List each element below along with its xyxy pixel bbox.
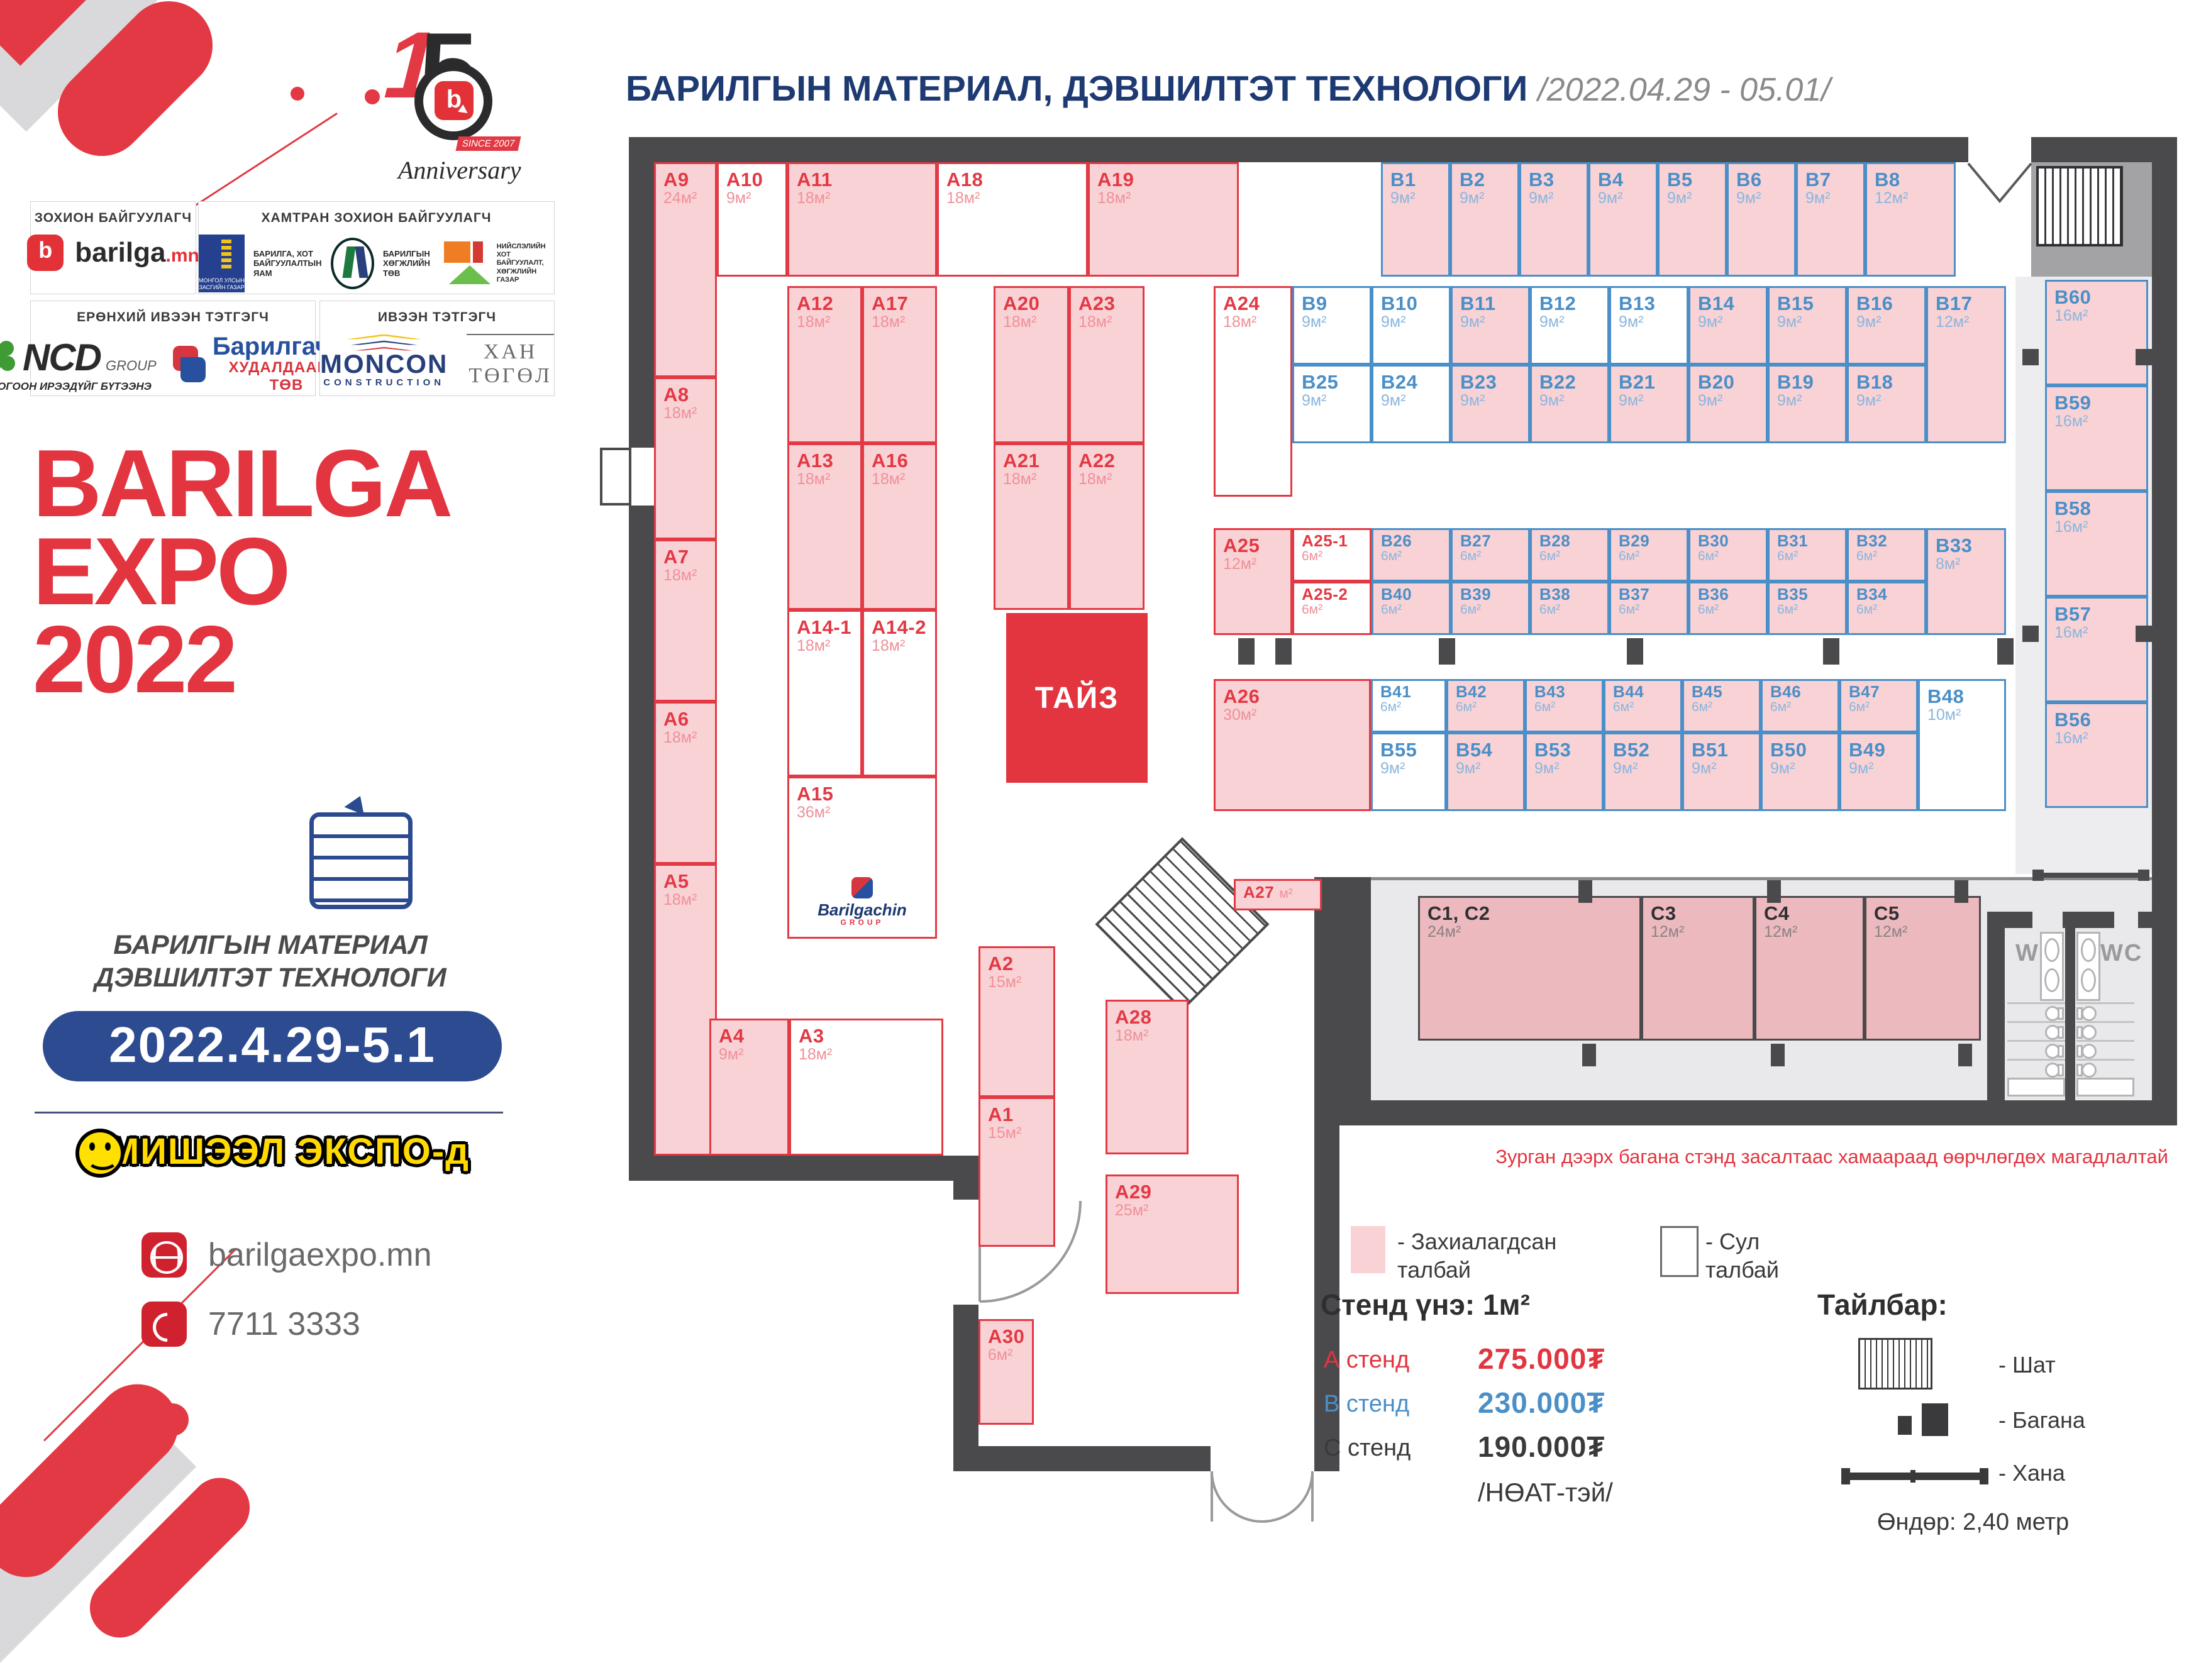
booth-B34: B346м² [1847,582,1926,635]
booth-B43: B436м² [1525,679,1604,732]
booth-B49: B499м² [1839,732,1918,811]
booth-B32: B326м² [1847,528,1926,582]
booth-B23: B239м² [1451,365,1530,443]
floor-plan: ТАЙЗ WC WC Зурган дээрх багана стэнд зас… [0,0,2206,1561]
structural-column [2032,870,2044,881]
structural-column [1238,638,1255,665]
key-wall-label: - Хана [1998,1460,2065,1486]
booth-A9: A924м² [654,162,717,377]
booth-A18: A1818м² [937,162,1088,277]
barilgachin-group-logo: BarilgachinGROUP [789,877,935,927]
booth-B44: B446м² [1604,679,1682,732]
structural-column [1954,880,1968,903]
booth-A27: A27м² [1234,879,1322,910]
booth-B51: B519м² [1682,732,1761,811]
booth-B52: B529м² [1604,732,1682,811]
structural-column [1771,1044,1785,1066]
booth-B2: B29м² [1450,162,1519,277]
structural-column [2138,870,2149,881]
structural-column [2136,626,2152,642]
column-icon-large [1922,1403,1948,1436]
booth-B28: B286м² [1530,528,1609,582]
booth-B1: B19м² [1381,162,1450,277]
key-height-note: Өндөр: 2,40 метр [1877,1509,2069,1536]
booth-B46: B466м² [1761,679,1839,732]
booth-A14-1: A14-118м² [787,610,862,776]
booth-B54: B549м² [1446,732,1525,811]
booth-B11: B119м² [1451,286,1530,365]
booth-B35: B356м² [1768,582,1847,635]
booth-B27: B276м² [1451,528,1530,582]
booth-A21: A2118м² [994,443,1069,610]
booth-A19: A1918м² [1088,162,1239,277]
structural-column [1582,1044,1596,1066]
booth-A6: A618м² [654,702,717,864]
column-icon-small [1898,1416,1912,1435]
booth-A17: A1718м² [862,286,937,443]
booth-B20: B209м² [1688,365,1768,443]
booth-B55: B559м² [1371,732,1446,811]
pricing-value-b: 230.000₮ [1478,1386,1605,1420]
booth-B45: B456м² [1682,679,1761,732]
booth-A15: A1536м²BarilgachinGROUP [787,776,937,939]
booth-A13: A1318м² [787,443,862,610]
booth-B12: B129м² [1530,286,1609,365]
booth-C4: C412м² [1754,896,1865,1041]
booth-B47: B476м² [1839,679,1918,732]
booth-C1-C2: C1, C224м² [1418,896,1641,1041]
booth-A8: A818м² [654,377,717,539]
booth-A16: A1618м² [862,443,937,610]
structural-column [1997,638,2014,665]
booth-A12: A1218м² [787,286,862,443]
pricing-vat-note: /НӨАТ-тэй/ [1478,1478,1613,1508]
booth-A11: A1118м² [787,162,937,277]
pricing-value-a: 275.000₮ [1478,1342,1605,1376]
structural-column [2136,349,2152,365]
booth-B56: B5616м² [2045,702,2148,808]
booth-A4: A49м² [709,1019,789,1156]
booth-A23: A2318м² [1069,286,1145,443]
legend-booked-swatch [1351,1226,1385,1273]
legend-free-swatch [1660,1226,1699,1277]
booth-B48: B4810м² [1918,679,2006,811]
booth-B21: B219м² [1609,365,1688,443]
booth-A25: A2512м² [1214,528,1292,635]
booth-C3: C312м² [1641,896,1754,1041]
booth-B58: B5816м² [2045,491,2148,597]
booth-A26: A2630м² [1214,679,1371,811]
structural-column [1627,638,1643,665]
booth-B33: B338м² [1926,528,2006,635]
booth-A29: A2925м² [1106,1174,1239,1294]
booth-B4: B49м² [1588,162,1658,277]
booth-A7: A718м² [654,539,717,702]
pricing-label-a: А стенд [1324,1347,1409,1374]
booth-B24: B249м² [1372,365,1451,443]
booth-A22: A2218м² [1069,443,1145,610]
booth-A2: A215м² [978,946,1055,1097]
booth-A1: A115м² [978,1097,1055,1247]
booth-B57: B5716м² [2045,597,2148,702]
structural-column [1439,638,1455,665]
booth-A10: A109м² [717,162,787,277]
booth-B22: B229м² [1530,365,1609,443]
pricing-label-c: С стенд [1324,1435,1411,1462]
booth-B25: B259м² [1292,365,1372,443]
booth-B50: B509м² [1761,732,1839,811]
booth-A28: A2818м² [1106,1000,1189,1154]
structural-column [2022,626,2039,642]
pricing-title: Стенд үнэ: 1м² [1321,1288,1530,1322]
booth-B10: B109м² [1372,286,1451,365]
booth-B38: B386м² [1530,582,1609,635]
booth-B9: B99м² [1292,286,1372,365]
pricing-value-c: 190.000₮ [1478,1430,1605,1464]
booth-A24: A2418м² [1214,286,1292,497]
booth-B16: B169м² [1847,286,1926,365]
booth-B30: B306м² [1688,528,1768,582]
booth-B13: B139м² [1609,286,1688,365]
booth-B41: B416м² [1371,679,1446,732]
booth-B42: B426м² [1446,679,1525,732]
booth-A3: A318м² [789,1019,943,1156]
structural-column [2022,349,2039,365]
booth-B53: B539м² [1525,732,1604,811]
booth-B60: B6016м² [2045,280,2148,385]
booth-A20: A2018м² [994,286,1069,443]
key-stairs-label: - Шат [1998,1352,2056,1378]
booth-C5: C512м² [1865,896,1981,1041]
booth-A5: A518м² [654,864,717,1156]
key-title: Тайлбар: [1817,1288,1948,1322]
booth-B36: B366м² [1688,582,1768,635]
booth-B14: B149м² [1688,286,1768,365]
booth-B6: B69м² [1727,162,1796,277]
booth-B3: B39м² [1519,162,1588,277]
booth-A30: A306м² [978,1319,1034,1425]
booth-B18: B189м² [1847,365,1926,443]
structural-column [1823,638,1839,665]
booth-B5: B59м² [1658,162,1727,277]
booth-B8: B812м² [1865,162,1956,277]
booth-B39: B396м² [1451,582,1530,635]
booth-B31: B316м² [1768,528,1847,582]
structural-column [1578,880,1592,903]
stairs-icon [1858,1338,1932,1390]
booth-B26: B266м² [1372,528,1451,582]
booth-B59: B5916м² [2045,385,2148,491]
booth-B7: B79м² [1796,162,1865,277]
booth-B40: B406м² [1372,582,1451,635]
structural-column [1275,638,1292,665]
structural-column [1958,1044,1972,1066]
pricing-label-b: В стенд [1324,1391,1409,1418]
booth-A14-2: A14-218м² [862,610,937,776]
booth-B37: B376м² [1609,582,1688,635]
legend-booked-label: - Захиалагдсан талбай [1397,1227,1556,1284]
legend-free-label: - Сул талбай [1705,1227,1779,1284]
booth-B29: B296м² [1609,528,1688,582]
wall-icon [1843,1473,1987,1480]
booth-B19: B199м² [1768,365,1847,443]
booth-B17: B1712м² [1926,286,2006,443]
booth-B15: B159м² [1768,286,1847,365]
booth-A25-1: A25-16м² [1292,528,1372,582]
booth-A25-2: A25-26м² [1292,582,1372,635]
structural-column [1767,880,1781,903]
key-column-label: - Багана [1998,1407,2085,1434]
